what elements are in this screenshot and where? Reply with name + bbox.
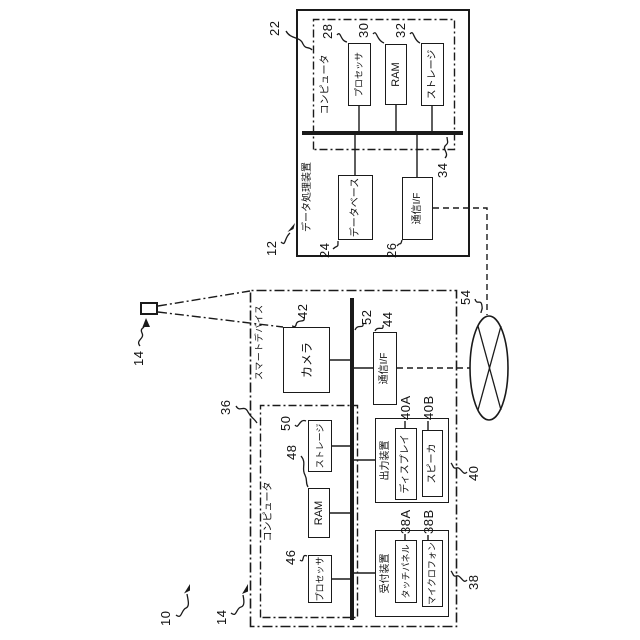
smart-device-miniature	[140, 302, 158, 315]
ref-46: 46	[284, 550, 297, 565]
patent-figure: データ処理装置 コンピュータ プロセッサ RAM ストレージ データベース 通信…	[0, 0, 640, 640]
sd-comm-if-box: 通信I/F	[373, 332, 397, 405]
dpd-processor-box: プロセッサ	[348, 43, 371, 106]
output-device-label: 出力装置	[381, 418, 391, 503]
ref-54: 54	[459, 290, 472, 305]
ref-50: 50	[279, 416, 292, 431]
ref-34: 34	[436, 163, 449, 178]
ref-40: 40	[467, 466, 480, 481]
dpd-database-box: データベース	[338, 175, 373, 240]
dpd-comm-if-box: 通信I/F	[402, 177, 433, 240]
ref-26: 26	[385, 243, 398, 258]
sd-camera-box: カメラ	[283, 327, 330, 393]
ref-42: 42	[296, 304, 309, 319]
ref-24: 24	[318, 243, 331, 258]
microphone-box: マイクロフォン	[422, 540, 443, 607]
ref-38A: 38A	[399, 509, 412, 534]
ref-40B: 40B	[422, 395, 435, 420]
smart-device-label: スマートデバイス	[255, 305, 264, 380]
sd-ram-box: RAM	[308, 488, 330, 538]
sd-bus-line	[350, 298, 354, 620]
ref-30: 30	[357, 23, 370, 38]
ref-48: 48	[285, 445, 298, 460]
dpd-storage-box: ストレージ	[421, 43, 444, 106]
speaker-box: スピーカ	[422, 430, 443, 497]
ref-38: 38	[467, 575, 480, 590]
ref-36: 36	[219, 400, 232, 415]
reception-device-label: 受付装置	[381, 530, 391, 617]
sd-storage-box: ストレージ	[308, 420, 332, 472]
ref-14-miniature: 14	[132, 351, 145, 366]
figure-canvas: データ処理装置 コンピュータ プロセッサ RAM ストレージ データベース 通信…	[0, 0, 640, 640]
ref-32: 32	[394, 23, 407, 38]
dpd-ram-box: RAM	[385, 44, 407, 105]
ref-40A: 40A	[399, 395, 412, 420]
sd-processor-box: プロセッサ	[308, 555, 332, 603]
ref-12: 12	[265, 241, 278, 256]
ref-10: 10	[159, 611, 172, 626]
ref-28: 28	[321, 24, 334, 39]
sd-computer-label: コンピュータ	[264, 405, 274, 618]
callout-line-1	[158, 291, 250, 306]
ref-44: 44	[381, 312, 394, 327]
display-box: ディスプレイ	[395, 428, 417, 500]
ref-52: 52	[360, 310, 373, 325]
touch-panel-box: タッチパネル	[395, 540, 417, 603]
ref-38B: 38B	[422, 509, 435, 534]
ref-14: 14	[215, 610, 228, 625]
ref-22: 22	[268, 21, 281, 36]
callout-line-2	[158, 312, 283, 327]
data-processing-device-label: データ処理装置	[303, 162, 313, 232]
